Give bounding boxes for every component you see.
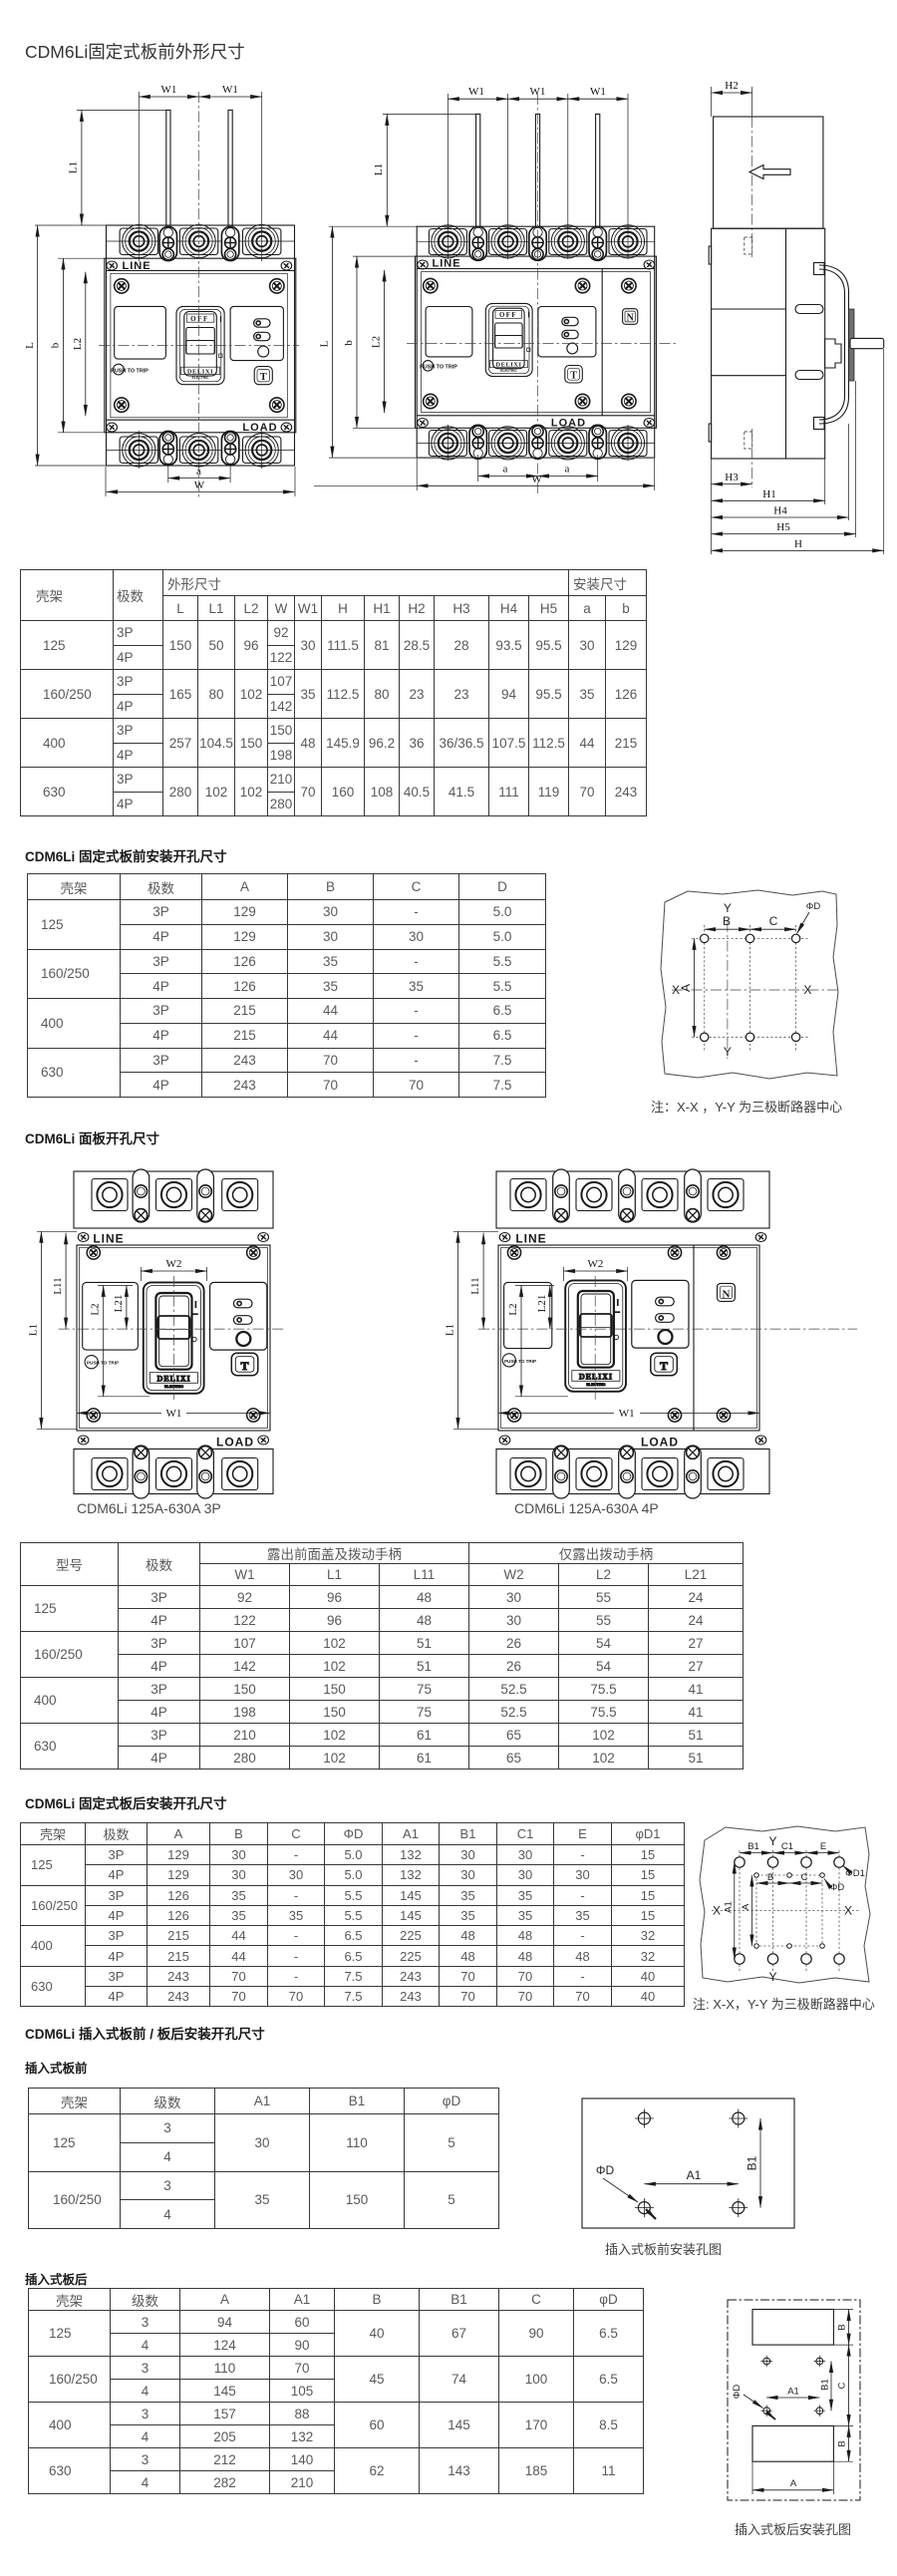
svg-text:A: A: [790, 2478, 797, 2489]
svg-text:A1: A1: [787, 2387, 799, 2398]
svg-text:B: B: [837, 2324, 848, 2330]
svg-text:ΦD: ΦD: [732, 2385, 743, 2400]
svg-text:C: C: [837, 2382, 848, 2389]
svg-text:B1: B1: [820, 2379, 831, 2391]
svg-text:B: B: [837, 2440, 848, 2446]
